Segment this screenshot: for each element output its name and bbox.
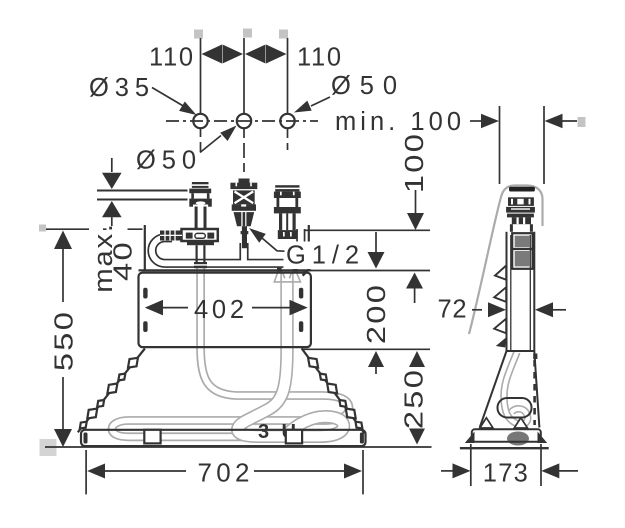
svg-text:G1/2: G1/2 bbox=[286, 241, 359, 269]
svg-text:110: 110 bbox=[297, 44, 341, 72]
svg-text:200: 200 bbox=[362, 283, 391, 344]
svg-text:250: 250 bbox=[400, 368, 429, 429]
svg-text:702: 702 bbox=[198, 458, 250, 488]
svg-text:100: 100 bbox=[400, 132, 429, 193]
svg-text:Ø35: Ø35 bbox=[89, 74, 149, 102]
svg-text:Ø50: Ø50 bbox=[331, 72, 397, 100]
svg-text:40: 40 bbox=[109, 240, 138, 281]
svg-text:Ø50: Ø50 bbox=[136, 147, 196, 175]
svg-text:173: 173 bbox=[483, 460, 528, 488]
svg-text:72: 72 bbox=[438, 296, 467, 324]
svg-text:550: 550 bbox=[50, 310, 79, 371]
svg-text:402: 402 bbox=[194, 296, 244, 324]
svg-text:110: 110 bbox=[149, 44, 193, 72]
